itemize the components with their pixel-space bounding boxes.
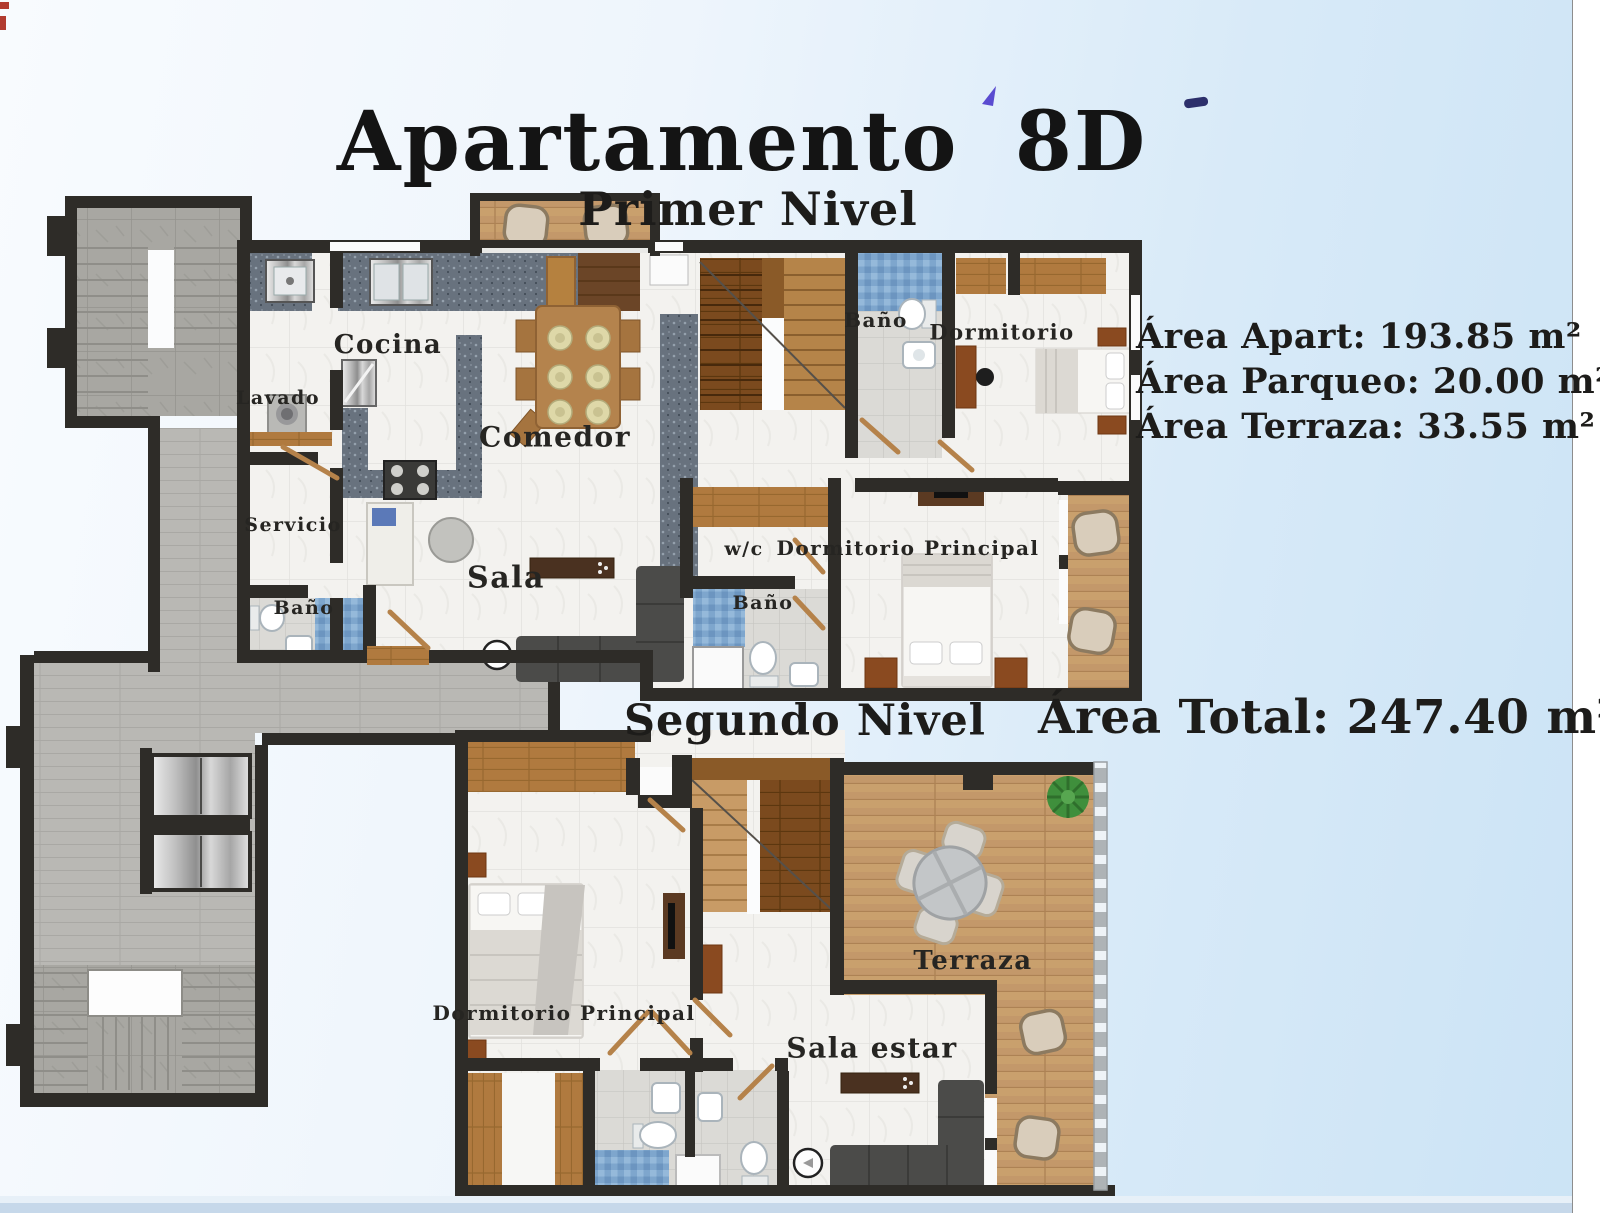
area-apart: Área Apart: 193.85 m² (1136, 316, 1582, 357)
interior-stairs-level2 (692, 758, 832, 914)
room-label-dormitorio-principal-l2: Dormitorio Principal (432, 1001, 695, 1025)
pouf (429, 518, 473, 562)
closet (1018, 258, 1106, 294)
pillow (372, 508, 396, 526)
sink (698, 1093, 722, 1121)
nightstand (1098, 416, 1126, 434)
room-label-comedor: Comedor (479, 421, 631, 454)
level2-heading: Segundo Nivel (624, 696, 986, 746)
room-label-bano-principal: Baño (733, 592, 794, 614)
room-label-dormitorio: Dormitorio (929, 320, 1074, 345)
edge-artifact (0, 16, 6, 30)
corridor-floor (160, 428, 237, 663)
room-label-terraza: Terraza (913, 946, 1032, 976)
room-label-cocina: Cocina (334, 330, 443, 360)
deck-chair (1013, 1115, 1060, 1160)
page-title: Apartamento 8D (337, 94, 1147, 190)
shelf (250, 432, 332, 446)
plant (1047, 776, 1089, 818)
area-parqueo: Área Parqueo: 20.00 m² (1136, 361, 1600, 402)
balcony-chair (1071, 509, 1120, 557)
room-label-bano-servicio: Baño (274, 597, 335, 619)
edge-artifact (1184, 96, 1209, 108)
closet (956, 258, 1006, 294)
deck-chair (1018, 1008, 1067, 1056)
shower (693, 647, 743, 690)
edge-artifact (0, 2, 9, 9)
toilet (741, 1142, 767, 1174)
sink (652, 1083, 680, 1113)
nightstand (995, 658, 1027, 688)
level1-plan (237, 193, 1142, 701)
cutting-board (547, 257, 575, 307)
nightstand (865, 658, 897, 688)
stove (384, 461, 436, 499)
closet (555, 1073, 583, 1187)
closet (468, 1073, 502, 1187)
french-door (482, 248, 648, 253)
stair-void (148, 250, 174, 348)
sliding-door (1059, 500, 1068, 555)
room-label-bano: Baño (844, 308, 908, 332)
window (655, 242, 683, 251)
toilet (750, 642, 776, 674)
sliding-door (985, 1150, 997, 1185)
tv-console (841, 1073, 919, 1093)
room-label-sala-estar: Sala estar (786, 1032, 957, 1065)
desk (956, 346, 976, 408)
nightstand (1098, 328, 1126, 346)
closet (468, 742, 635, 792)
room-label-wc: w/c (724, 538, 763, 560)
window (330, 242, 420, 251)
sliding-door (985, 1098, 997, 1138)
walkin-closet (693, 487, 828, 527)
threshold (367, 646, 429, 665)
room-label-lavado: Lavado (236, 387, 320, 409)
area-total: Área Total: 247.40 m² (1038, 690, 1600, 745)
sliding-door (1059, 569, 1068, 624)
room-label-servicio: Servicio (244, 514, 342, 536)
desk-chair (976, 368, 994, 386)
level1-heading: Primer Nivel (578, 182, 917, 236)
area-terraza: Área Terraza: 33.55 m² (1136, 406, 1595, 447)
balcony-chair (1067, 606, 1118, 655)
toilet (640, 1122, 676, 1148)
room-label-dormitorio-principal-l1: Dormitorio Principal (776, 536, 1039, 560)
room-label-sala: Sala (467, 561, 545, 596)
brochure-page: Apartamento 8D Primer Nivel Segundo Nive… (0, 0, 1600, 1213)
interior-stairs-level1 (700, 258, 845, 410)
sink (790, 663, 818, 686)
glass-railing (1094, 762, 1107, 1190)
stair-window (650, 255, 688, 285)
